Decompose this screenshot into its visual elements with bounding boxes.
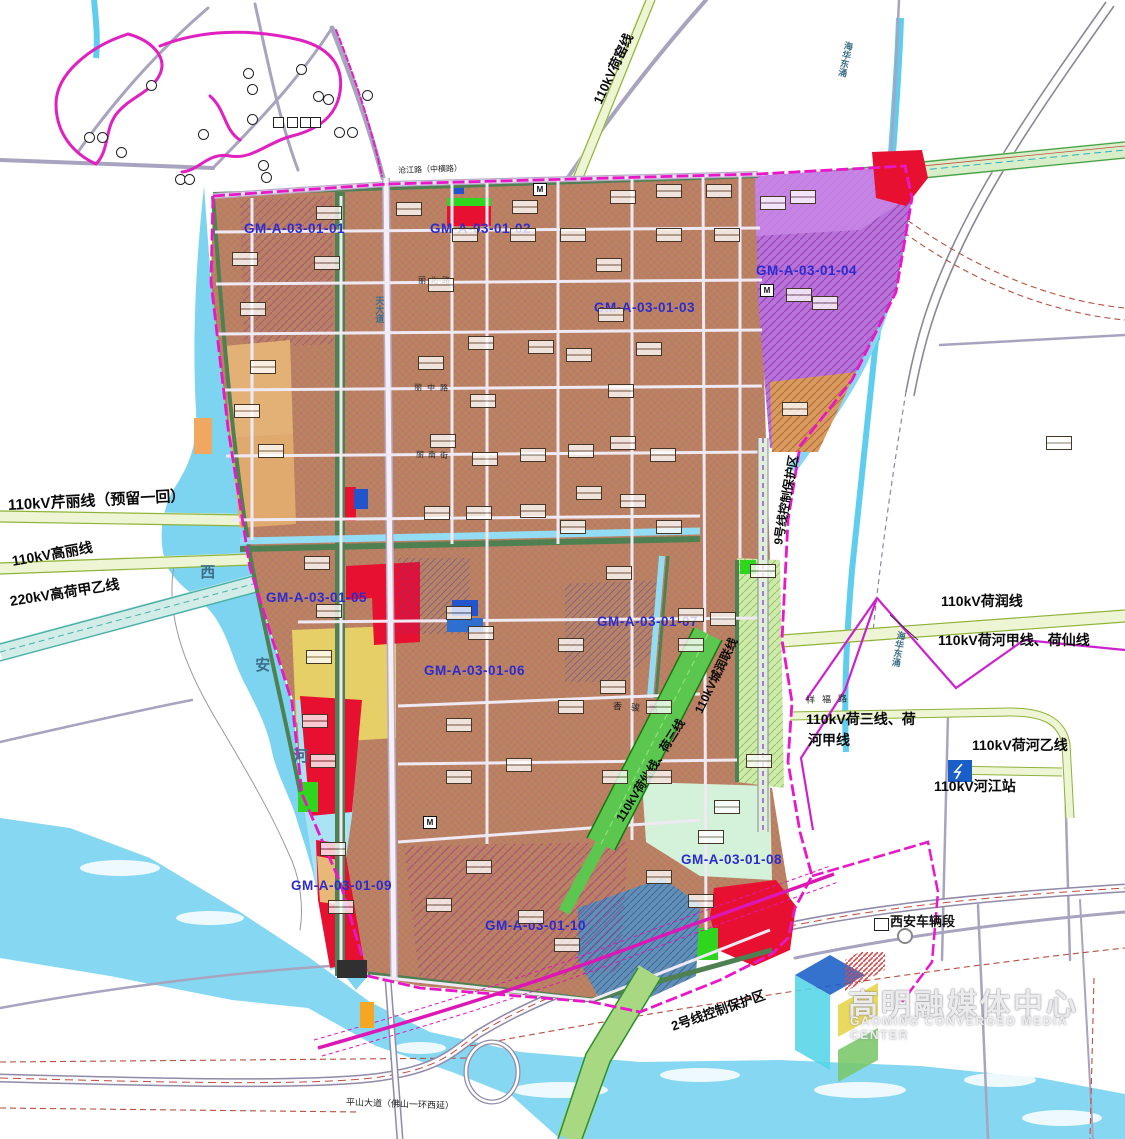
- river-label: 西: [198, 564, 215, 579]
- power-line-label: 110kV荷河甲线、荷仙线: [938, 632, 1090, 648]
- channel-haihua-right: [845, 340, 876, 752]
- block-label-box: [646, 700, 672, 714]
- block-label-box: [610, 436, 636, 450]
- zone-blue-g: [354, 489, 368, 509]
- map-icon: [84, 132, 95, 143]
- power-line-label: 110kV河江站: [934, 778, 1016, 794]
- block-label-box: [558, 638, 584, 652]
- parcel-label: GM-A-03-01-09: [291, 878, 392, 894]
- block-label-box: [452, 228, 478, 242]
- block-label-box: [646, 770, 672, 784]
- block-label-box: [302, 714, 328, 728]
- block-label-box: [446, 718, 472, 732]
- map-square-icon: [287, 117, 298, 128]
- block-label-box: [646, 870, 672, 884]
- corridor-heyao: [572, 0, 650, 192]
- map-canvas: [0, 0, 1125, 1139]
- block-label-box: [472, 452, 498, 466]
- map-icon: [116, 147, 127, 158]
- block-label-box: [468, 626, 494, 640]
- block-label-box: [678, 608, 704, 622]
- block-label-box: [320, 842, 346, 856]
- block-label-box: [418, 356, 444, 370]
- block-label-box: [558, 700, 584, 714]
- park-boundary: [56, 30, 382, 176]
- block-label-box: [656, 520, 682, 534]
- metro-station-icon: M: [760, 284, 774, 297]
- map-icon: [247, 114, 258, 125]
- block-label-box: [316, 206, 342, 220]
- block-label-box: [426, 898, 452, 912]
- power-line-label: 110kV荷河乙线: [972, 737, 1068, 753]
- block-label-box: [528, 340, 554, 354]
- planning-map: 高明融媒体中心 GAOMING CONVERGED MEDIA CENTER G…: [0, 0, 1125, 1139]
- map-icon: [362, 90, 373, 101]
- block-label-box: [520, 504, 546, 518]
- block-label-box: [466, 506, 492, 520]
- block-label-box: [600, 680, 626, 694]
- parcel-label: GM-A-03-01-04: [756, 263, 857, 279]
- metro-station-icon: M: [533, 183, 547, 196]
- block-label-box: [706, 184, 732, 198]
- power-line-label: 河甲线: [808, 732, 850, 748]
- block-label-box: [316, 604, 342, 618]
- block-label-box: [656, 184, 682, 198]
- block-label-box: [650, 448, 676, 462]
- block-label-box: [608, 384, 634, 398]
- map-icon: [97, 132, 108, 143]
- block-label-box: [468, 336, 494, 350]
- block-label-box: [782, 402, 808, 416]
- block-label-box: [430, 434, 456, 448]
- block-label-box: [446, 606, 472, 620]
- block-label-box: [396, 202, 422, 216]
- block-label-box: [750, 564, 776, 578]
- map-square-icon: [273, 117, 284, 128]
- railway-line: [872, 2, 1114, 642]
- block-label-box: [510, 228, 536, 242]
- road-label: 祥福路: [806, 693, 854, 705]
- block-label-box: [606, 566, 632, 580]
- facility-label: 西安车辆段: [890, 915, 955, 930]
- block-label-box: [310, 754, 336, 768]
- map-square-icon: [310, 117, 321, 128]
- block-label-box: [518, 910, 544, 924]
- zone-green-strip-02: [447, 198, 491, 206]
- map-icon: [184, 174, 195, 185]
- depot-dark-box: [337, 960, 367, 978]
- parcel-label: GM-A-03-01-01: [244, 221, 345, 237]
- block-label-box: [314, 256, 340, 270]
- map-icon: [146, 80, 157, 91]
- block-label-box: [714, 228, 740, 242]
- parcel-label: GM-A-03-01-08: [681, 852, 782, 868]
- river-label: 河: [291, 748, 308, 763]
- power-line-label: 110kV荷三线、荷: [806, 711, 916, 727]
- block-label-box: [250, 360, 276, 374]
- road-label: 丽南街: [416, 450, 452, 460]
- block-label-box: [596, 258, 622, 272]
- block-label-box: [710, 612, 736, 626]
- block-label-box: [678, 638, 704, 652]
- block-label-box: [560, 520, 586, 534]
- corridor-heheyi-top: [790, 712, 1070, 818]
- parcel-label: GM-A-03-01-06: [424, 663, 525, 679]
- block-label-box: [790, 190, 816, 204]
- block-label-box: [688, 894, 714, 908]
- map-icon: [296, 64, 307, 75]
- block-label-box: [470, 394, 496, 408]
- block-label-box: [446, 770, 472, 784]
- block-label-box: [568, 444, 594, 458]
- zone-red-e: [872, 150, 928, 206]
- river-label: 安: [253, 657, 270, 672]
- block-label-box: [610, 190, 636, 204]
- block-label-box: [512, 200, 538, 214]
- block-label-box: [520, 448, 546, 462]
- block-label-box: [304, 556, 330, 570]
- map-icon: [261, 172, 272, 183]
- block-label-box: [560, 228, 586, 242]
- block-label-box: [620, 494, 646, 508]
- block-label-box: [566, 348, 592, 362]
- block-label-box: [234, 404, 260, 418]
- power-line-label: 110kV荷润线: [941, 593, 1023, 609]
- map-icon: [347, 127, 358, 138]
- block-label-box: [506, 758, 532, 772]
- depot-icon: [874, 918, 889, 931]
- map-icon: [323, 94, 334, 105]
- block-label-box: [328, 900, 354, 914]
- block-label-box: [554, 938, 580, 952]
- block-label-box: [714, 800, 740, 814]
- block-label-box: [812, 296, 838, 310]
- block-label-box: [240, 302, 266, 316]
- map-icon: [247, 84, 258, 95]
- map-icon: [258, 160, 269, 171]
- block-label-box: [428, 278, 454, 292]
- block-label-box: [760, 196, 786, 210]
- block-label-box: [656, 228, 682, 242]
- block-label-box: [602, 770, 628, 784]
- orange-block: [360, 1002, 374, 1028]
- metro-station-icon: M: [423, 816, 437, 829]
- block-label-box: [466, 860, 492, 874]
- block-label-box: [636, 342, 662, 356]
- block-label-box: [232, 252, 258, 266]
- block-label-box: [1046, 436, 1072, 450]
- river-label: 天大道: [374, 296, 384, 323]
- block-label-box: [698, 830, 724, 844]
- map-icon: [334, 127, 345, 138]
- zone-orange-bank: [194, 418, 212, 454]
- road-label: 丽中路: [414, 383, 453, 393]
- map-icon: [198, 129, 209, 140]
- map-icon: [243, 68, 254, 79]
- block-label-box: [306, 650, 332, 664]
- block-label-box: [786, 288, 812, 302]
- block-label-box: [258, 444, 284, 458]
- block-label-box: [598, 308, 624, 322]
- watermark-english: GAOMING CONVERGED MEDIA CENTER: [850, 1014, 1118, 1042]
- block-label-box: [746, 754, 772, 768]
- block-label-box: [576, 486, 602, 500]
- block-label-box: [424, 506, 450, 520]
- road-interchange-circle: [898, 929, 912, 943]
